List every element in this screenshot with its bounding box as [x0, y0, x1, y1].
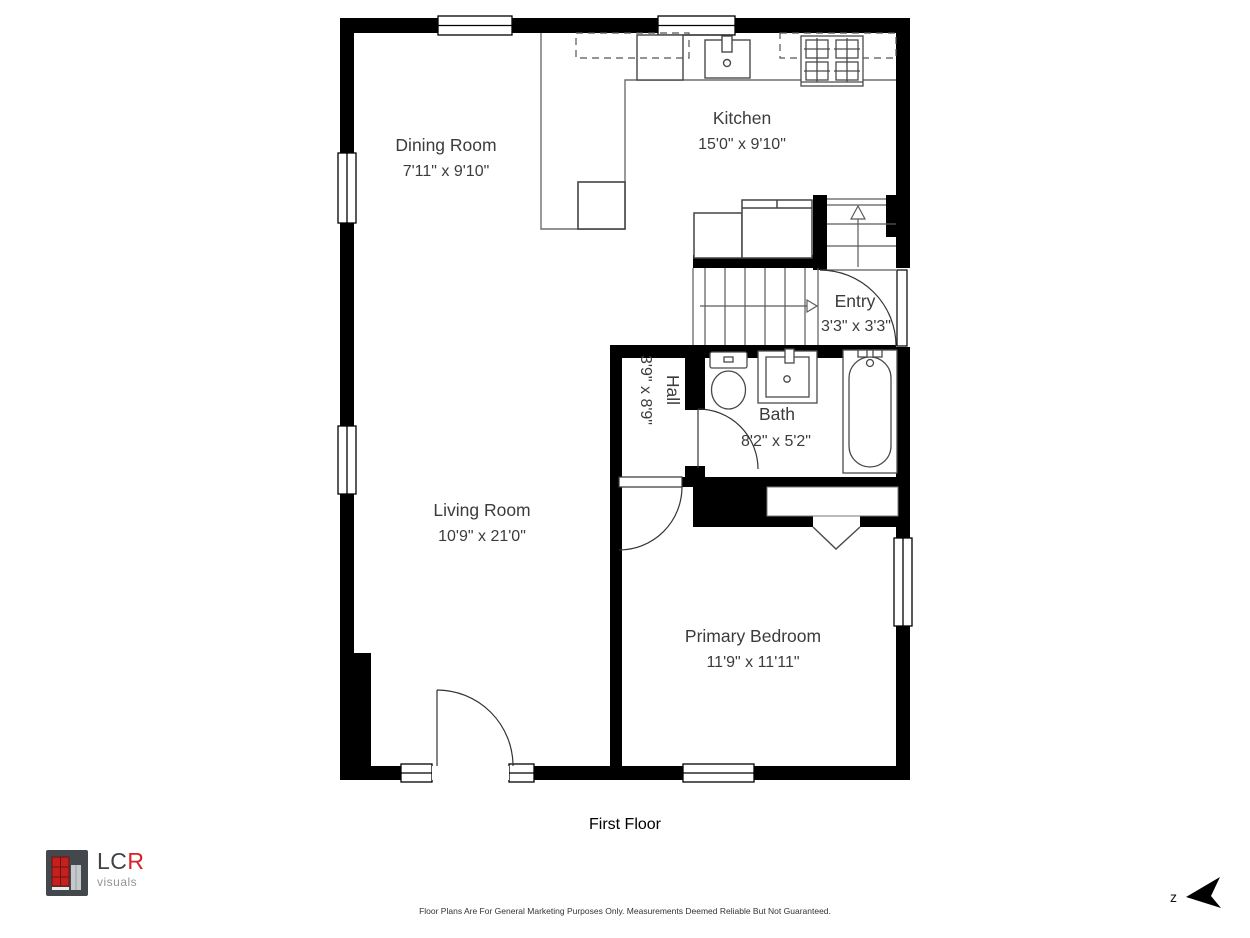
- lcr-logo-text: LCR visuals: [97, 850, 145, 888]
- disclaimer-text: Floor Plans Are For General Marketing Pu…: [0, 906, 1250, 916]
- hall-label: Hall: [663, 375, 683, 405]
- toilet-icon: [710, 352, 747, 409]
- bath-fixtures: [710, 349, 897, 473]
- stove-icon: [801, 36, 863, 86]
- living-room-label: Living Room: [433, 500, 530, 520]
- window-left-living: [338, 426, 356, 494]
- window-sidelite-right: [509, 764, 534, 782]
- bathtub-icon: [843, 350, 897, 473]
- logo-lc: LC: [97, 848, 127, 874]
- wall-chimney-block: [693, 477, 767, 527]
- entry-label: Entry: [835, 291, 876, 311]
- north-arrow-icon: [1168, 870, 1238, 915]
- kitchen-sink-icon: [705, 36, 750, 78]
- wall-closet-front-left: [767, 516, 813, 527]
- lcr-visuals-logo: LCR visuals: [46, 850, 145, 896]
- compass: z: [1168, 870, 1238, 915]
- hall-dims: 3'9" x 8'9": [637, 355, 654, 425]
- kitchen-appliance-square: [578, 182, 625, 229]
- logo-r: R: [127, 848, 144, 874]
- window-left-dining: [338, 153, 356, 223]
- floor-plan-page: Dining Room 7'11" x 9'10" Kitchen 15'0" …: [0, 0, 1250, 938]
- stairs-cut-line: [827, 195, 886, 208]
- wall-hall-bedroom: [610, 345, 622, 766]
- wall-left: [340, 18, 354, 780]
- window-bottom-bedroom: [683, 764, 754, 782]
- front-door-swing: [437, 690, 513, 766]
- bath-dims: 8'2" x 5'2": [741, 433, 811, 450]
- dining-room-label: Dining Room: [395, 135, 496, 155]
- closet-interior: [767, 487, 898, 516]
- window-top-dining: [438, 16, 512, 35]
- floor-title: First Floor: [0, 816, 1250, 834]
- bathroom-sink-icon: [758, 349, 817, 403]
- window-top-kitchen: [658, 16, 735, 35]
- kitchen-dims: 15'0" x 9'10": [698, 136, 786, 153]
- wall-right: [896, 18, 910, 780]
- bedroom-door-swing: [619, 477, 682, 550]
- wall-bath-left-upper: [685, 358, 705, 410]
- wall-door-header-bit: [682, 477, 695, 487]
- window-sidelite-left: [401, 764, 432, 782]
- lcr-logo-icon: [46, 850, 88, 896]
- compass-label: z: [1170, 889, 1177, 905]
- entry-door-slab: [897, 270, 907, 346]
- window-right-bedroom: [894, 538, 912, 626]
- primary-bedroom-dims: 11'9" x 11'11": [706, 654, 799, 671]
- lcr-logo-subtext: visuals: [97, 876, 145, 888]
- bath-label: Bath: [759, 404, 795, 424]
- kitchen-label: Kitchen: [713, 108, 771, 128]
- wall-stairs-topright: [886, 195, 896, 237]
- wall-top: [340, 18, 910, 33]
- wall-closet-front-right: [860, 516, 898, 527]
- dining-room-dims: 7'11" x 9'10": [403, 163, 490, 180]
- floor-plan-drawing: Dining Room 7'11" x 9'10" Kitchen 15'0" …: [0, 0, 1250, 938]
- closet-bifold-door: [813, 527, 860, 549]
- lcr-logo-wordmark: LCR: [97, 850, 145, 873]
- living-room-dims: 10'9" x 21'0": [438, 528, 526, 545]
- wall-left-bump: [352, 653, 371, 766]
- wall-stairs-left: [813, 195, 827, 270]
- entry-dims: 3'3" x 3'3": [821, 318, 891, 335]
- primary-bedroom-label: Primary Bedroom: [685, 626, 821, 646]
- fridge-icon: [694, 200, 812, 258]
- front-door-opening: [432, 766, 509, 780]
